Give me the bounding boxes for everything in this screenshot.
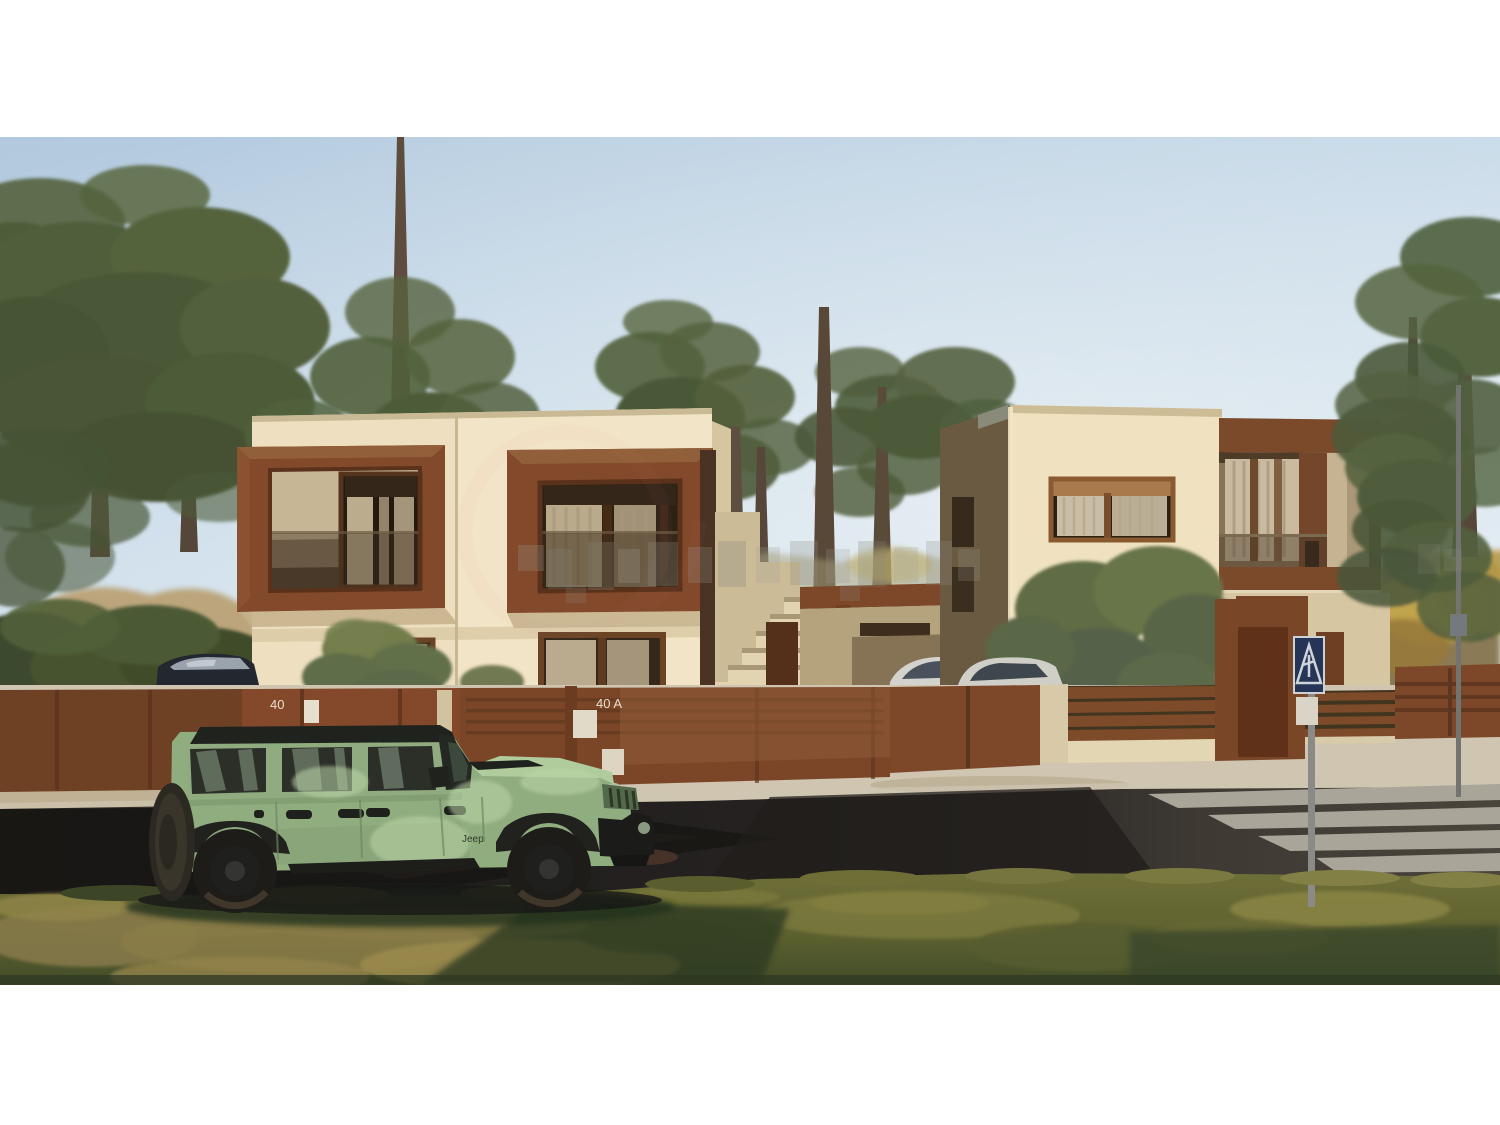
svg-text:40 A: 40 A: [596, 696, 622, 711]
svg-text:40: 40: [270, 697, 284, 712]
svg-text:Jeep: Jeep: [462, 834, 484, 845]
